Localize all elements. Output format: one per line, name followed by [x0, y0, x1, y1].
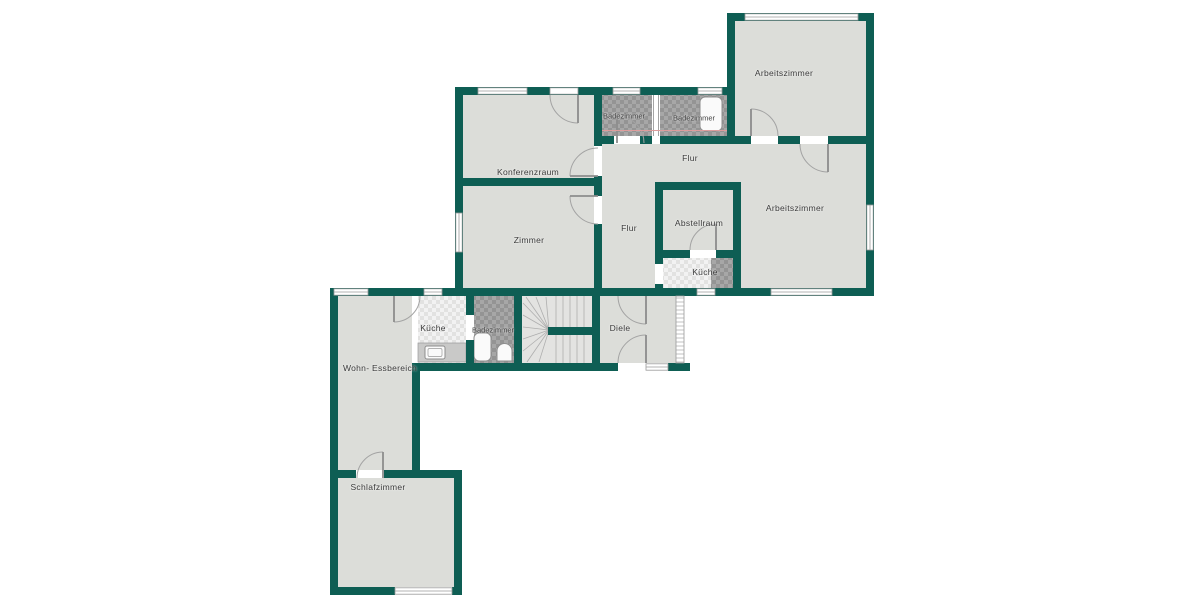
- floor-flur-upper: [602, 144, 733, 182]
- glazed-partition: [676, 296, 684, 363]
- window: [867, 205, 873, 250]
- floor-arbeitszimmer-top: [735, 21, 866, 136]
- floor-arbeitszimmer-right: [741, 144, 866, 288]
- room-label-arbeitszimmer-top: Arbeitszimmer: [755, 68, 813, 78]
- window: [334, 289, 368, 295]
- floor-schlafzimmer: [338, 478, 454, 587]
- room-label-flur-center: Flur: [621, 223, 637, 233]
- room-label-zimmer: Zimmer: [514, 235, 545, 245]
- room-label-abstellraum: Abstellraum: [675, 218, 723, 228]
- window: [646, 364, 668, 370]
- room-label-konferenzraum: Konferenzraum: [497, 167, 559, 177]
- room-label-arbeitszimmer-right: Arbeitszimmer: [766, 203, 824, 213]
- window: [745, 14, 858, 20]
- room-label-badezimmer-top-left: Badezimmer: [603, 112, 645, 121]
- toilet-icon: [497, 344, 512, 361]
- window: [456, 213, 462, 252]
- room-label-schlafzimmer: Schlafzimmer: [350, 482, 405, 492]
- room-label-badezimmer-top-right: Badezimmer: [673, 114, 715, 123]
- window: [697, 289, 715, 295]
- floorplan-drawing: [0, 0, 1200, 600]
- window: [771, 289, 832, 295]
- floor-wohn-essbereich: [338, 296, 412, 470]
- window: [424, 289, 442, 295]
- floor-corridor-gap: [727, 144, 741, 182]
- room-label-kueche-upper: Küche: [692, 267, 718, 277]
- window: [395, 588, 452, 594]
- window: [698, 88, 722, 94]
- room-label-flur-upper: Flur: [682, 153, 698, 163]
- window: [613, 88, 640, 94]
- window: [550, 88, 578, 94]
- room-label-kueche-lower: Küche: [420, 323, 446, 333]
- floor-konferenzraum: [463, 95, 594, 178]
- floorplan-page: Arbeitszimmer Badezimmer Badezimmer Flur…: [0, 0, 1200, 600]
- room-label-wohn-essbereich: Wohn- Essbereich: [343, 363, 417, 373]
- bathtub-lower-icon: [474, 333, 491, 361]
- room-label-badezimmer-lower: Badezimmer: [472, 326, 514, 335]
- room-label-diele: Diele: [610, 323, 631, 333]
- floor-flur-center: [602, 182, 655, 288]
- window: [478, 88, 527, 94]
